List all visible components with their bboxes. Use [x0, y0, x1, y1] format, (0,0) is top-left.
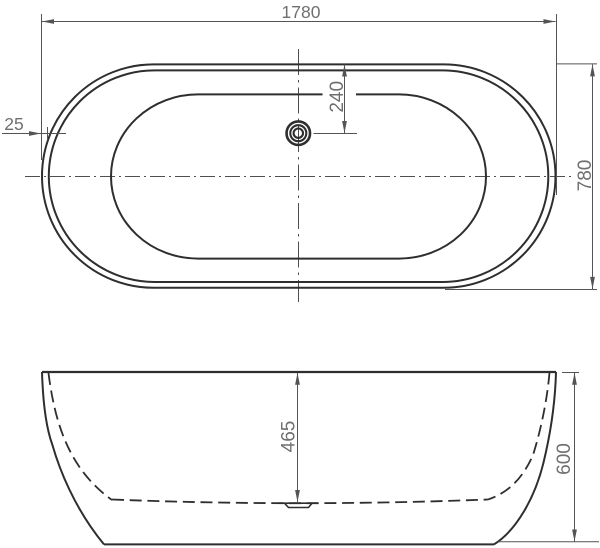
svg-text:25: 25	[4, 114, 23, 134]
svg-text:1780: 1780	[282, 2, 321, 22]
svg-text:780: 780	[575, 160, 596, 192]
svg-text:240: 240	[327, 81, 348, 113]
svg-text:600: 600	[554, 443, 575, 475]
svg-text:465: 465	[279, 421, 300, 453]
